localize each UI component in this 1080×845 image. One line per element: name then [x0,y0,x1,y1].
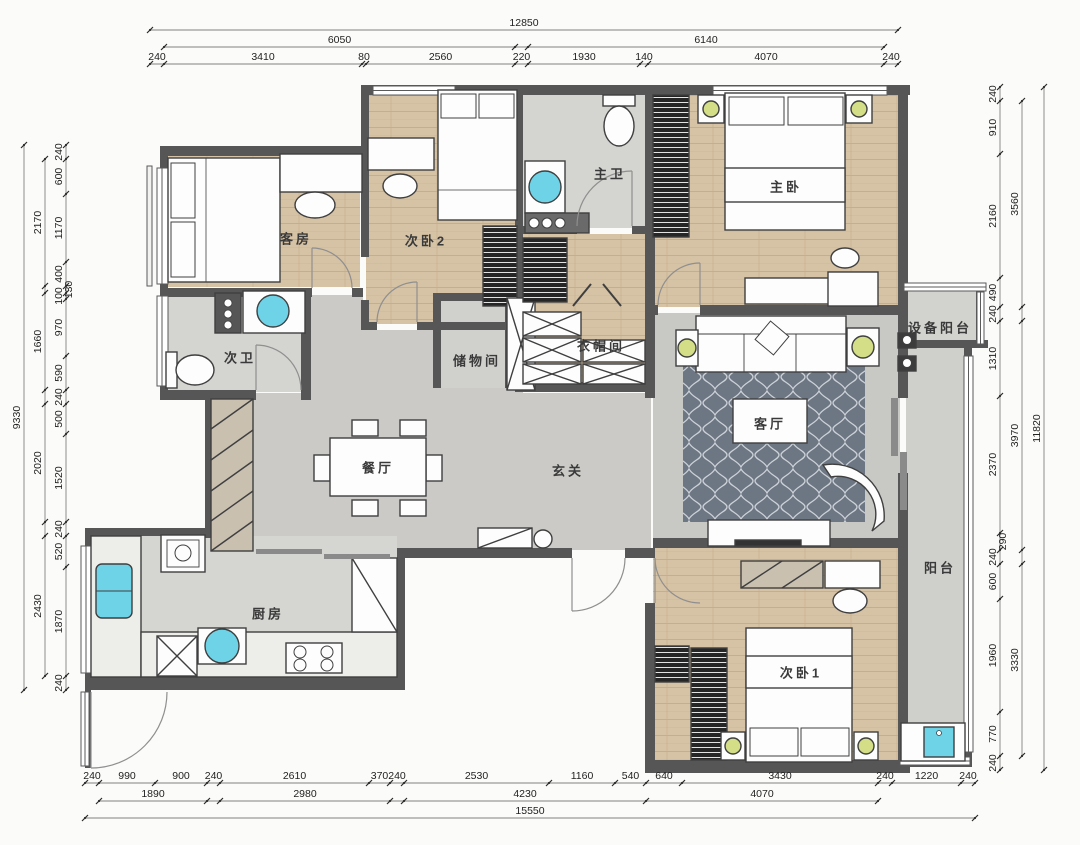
dimension-label: 1960 [987,644,999,668]
sink-icon [529,171,561,203]
dimension-label: 240 [882,51,900,63]
dimension-label: 540 [622,770,640,782]
dimension-label: 400 [53,265,65,283]
balcony-floor [906,348,968,757]
bedroom2-wardrobe [483,226,517,306]
dimension-label: 1520 [53,466,65,490]
sink-icon [205,629,239,663]
dimension-label: 1310 [987,347,999,371]
bedroom1-bed [746,628,852,762]
dimension-label: 3970 [1009,424,1021,448]
dimension-label: 240 [53,143,65,161]
dimension-label: 240 [987,305,999,323]
dimension-label: 1220 [915,770,939,782]
master-wardrobe [653,95,689,237]
lamp-icon [678,339,696,357]
dimension-label: 240 [83,770,101,782]
dimension-label: 500 [53,410,65,428]
kitchen-sink-double [96,564,132,618]
dimension-label: 3430 [768,770,792,782]
dimension-label: 12850 [509,17,538,29]
dimension-label: 240 [987,754,999,772]
dresser-stool [831,248,859,268]
dimension-label: 240 [959,770,977,782]
dimension-label: 990 [118,770,136,782]
bedroom2-chair [383,174,417,198]
dimension-label: 11820 [1031,414,1043,443]
dimension-label: 970 [53,319,65,337]
dimension-label: 240 [148,51,166,63]
bath-counter [525,213,589,233]
dimension-label: 590 [53,364,65,382]
guest-desk [280,154,362,192]
dimension-label: 2530 [465,770,489,782]
bed-bench [745,278,833,304]
equipment-balcony-floor [906,290,980,342]
storage-floor [441,301,507,388]
dimension-label: 2370 [987,453,999,477]
floor-plan-page: 1285060506140240341080256022019301404070… [0,0,1080,845]
guest-chair [295,192,335,218]
dimension-label: 2980 [293,788,317,800]
dimension-label: 240 [205,770,223,782]
sofa [696,316,846,372]
stove-icon [286,643,342,673]
tv-cabinet [708,520,830,546]
guest-bed [168,158,280,282]
dining-cabinet [211,399,253,551]
toilet-icon [603,95,635,146]
lamp-icon [858,738,874,754]
dimension-label: 1160 [571,770,594,782]
dimension-label: 520 [53,543,65,561]
dimension-label: 4070 [754,51,778,63]
dimension-label: 6140 [694,34,718,46]
dimension-label: 15550 [515,805,544,817]
dimension-label: 6050 [328,34,352,46]
dimension-label: 1890 [141,788,165,800]
dimension-label: 490 [987,284,999,302]
bedroom1-cabinet-hatch [655,646,689,682]
dimension-label: 220 [513,51,531,63]
lamp-icon [703,101,719,117]
lamp-icon [852,336,874,358]
dresser [828,272,878,306]
dimension-label: 240 [987,85,999,103]
dimension-label: 290 [997,533,1009,551]
bedroom2-desk [368,138,434,170]
laundry-box [215,293,241,333]
floor-plan-drawing: 1285060506140240341080256022019301404070… [0,0,1080,845]
master-bed [725,93,845,230]
dimension-label: 3560 [1009,192,1021,216]
lamp-icon [851,101,867,117]
dimension-label: 2610 [283,770,307,782]
dimension-label: 600 [53,168,65,186]
dimension-label: 240 [53,388,65,406]
dimension-label: 4230 [513,788,537,800]
bedroom1-desk [825,561,880,588]
dimension-label: 3410 [251,51,275,63]
fridge-icon [161,535,205,572]
dimension-label: 240 [388,770,406,782]
dimension-label: 9330 [11,406,23,430]
dimension-label: 370 [371,770,389,782]
dimension-label: 240 [987,548,999,566]
dimension-label: 2170 [32,211,44,235]
living-label-card [733,399,807,443]
dimension-label: 2020 [32,451,44,475]
dimension-label: 240 [53,674,65,692]
dimension-label: 600 [987,573,999,591]
dimension-label: 910 [987,119,999,137]
dimension-label: 2430 [32,594,44,618]
bedroom1-chair [833,589,867,613]
washer-station [901,723,965,761]
dimension-label: 100 [53,287,65,305]
cloak-closet [523,238,567,302]
dimension-label: 80 [358,51,370,63]
dimension-label: 240 [876,770,894,782]
kitchen-corner-cabinet [157,636,197,676]
dimension-label: 770 [987,725,999,743]
shoe-cabinet [478,528,532,548]
dimension-label: 900 [172,770,190,782]
dimension-label: 4070 [750,788,774,800]
porch-door [91,692,167,768]
sink-icon [257,295,289,327]
dimension-label: 640 [655,770,673,782]
lamp-icon [725,738,741,754]
hall-floor [308,295,363,395]
dimension-label: 1660 [32,330,44,354]
dimension-label: 140 [635,51,653,63]
dimension-label: 240 [53,520,65,538]
bedroom2-bed [438,90,517,220]
dimension-label: 1170 [53,217,65,240]
bedroom1-top-cabinet [741,561,823,588]
dimension-label: 3330 [1009,648,1021,672]
foyer-stool [534,530,552,548]
entry-door [572,558,625,611]
kitchen-tall-cabinet [352,558,397,632]
dimension-label: 2560 [429,51,453,63]
dimension-label: 1930 [572,51,596,63]
dimension-label: 1870 [53,610,65,634]
dimension-label: 2160 [987,204,999,228]
